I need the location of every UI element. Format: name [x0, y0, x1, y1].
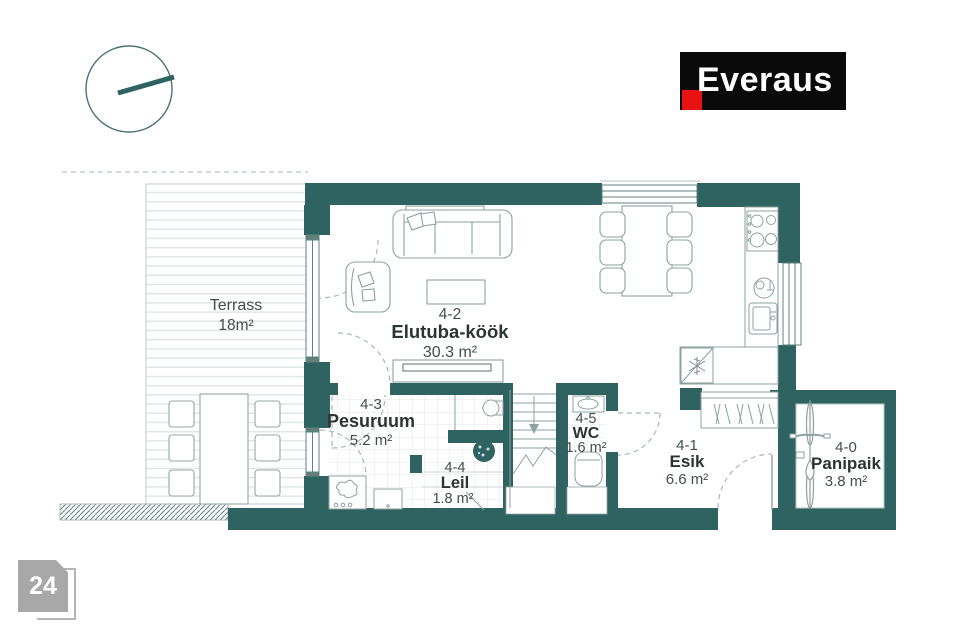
label-leil-area: 1.8 m²	[432, 491, 473, 507]
entrance-door-arc	[718, 454, 772, 508]
brochure-page: Terrass 18m² 4-2 Elutuba-köök 30.3 m² 4-…	[0, 0, 960, 640]
sauna-stove-icon	[473, 440, 495, 462]
label-leil-name: Leil	[441, 474, 469, 492]
brand-name: Everaus	[697, 52, 833, 110]
dining-set	[600, 206, 692, 296]
label-esik-name: Esik	[670, 452, 706, 471]
label-terrass-area: 18m²	[218, 317, 253, 334]
label-pesuruum-name: Pesuruum	[327, 411, 415, 431]
tv-bench-icon	[393, 360, 503, 382]
label-wc-area: 1.6 m²	[565, 440, 606, 456]
sink-icon	[749, 303, 777, 334]
armchair-icon	[346, 262, 390, 312]
label-terrass-name: Terrass	[210, 297, 262, 314]
label-panipaik-area: 3.8 m²	[825, 473, 868, 490]
label-pesuruum-area: 5.2 m²	[350, 432, 393, 449]
hall-furniture	[701, 392, 778, 428]
dining-table-icon	[622, 206, 672, 296]
logo: Everaus	[680, 52, 846, 110]
label-panipaik-name: Panipaik	[811, 454, 881, 473]
window-top	[600, 181, 700, 203]
label-elutuba-name: Elutuba-köök	[391, 321, 509, 342]
terrace	[60, 172, 308, 520]
washbasin-icon	[483, 400, 503, 416]
toilet-icon	[575, 452, 602, 486]
fridge-icon	[681, 348, 713, 383]
stove-icon	[747, 211, 778, 251]
washing-machine-icon	[329, 476, 366, 509]
compass-icon	[86, 46, 174, 132]
hatched-low-wall	[60, 504, 228, 520]
page-number-badge: 24	[18, 560, 68, 612]
coffee-table-icon	[427, 280, 485, 304]
wc-sink-icon	[573, 396, 604, 412]
window-right	[783, 263, 801, 345]
window-left-lower	[306, 428, 319, 476]
sofa-icon	[393, 210, 512, 258]
wardrobe-icon	[701, 392, 778, 428]
kitchen	[680, 207, 778, 384]
dishwasher-icon	[754, 278, 774, 298]
floor-mat-icon	[374, 489, 402, 509]
window-left-upper	[306, 235, 319, 362]
terrace-table-icon	[200, 394, 248, 504]
page-number: 24	[29, 572, 57, 601]
label-esik-area: 6.6 m²	[666, 471, 709, 488]
label-elutuba-area: 30.3 m²	[423, 344, 478, 361]
